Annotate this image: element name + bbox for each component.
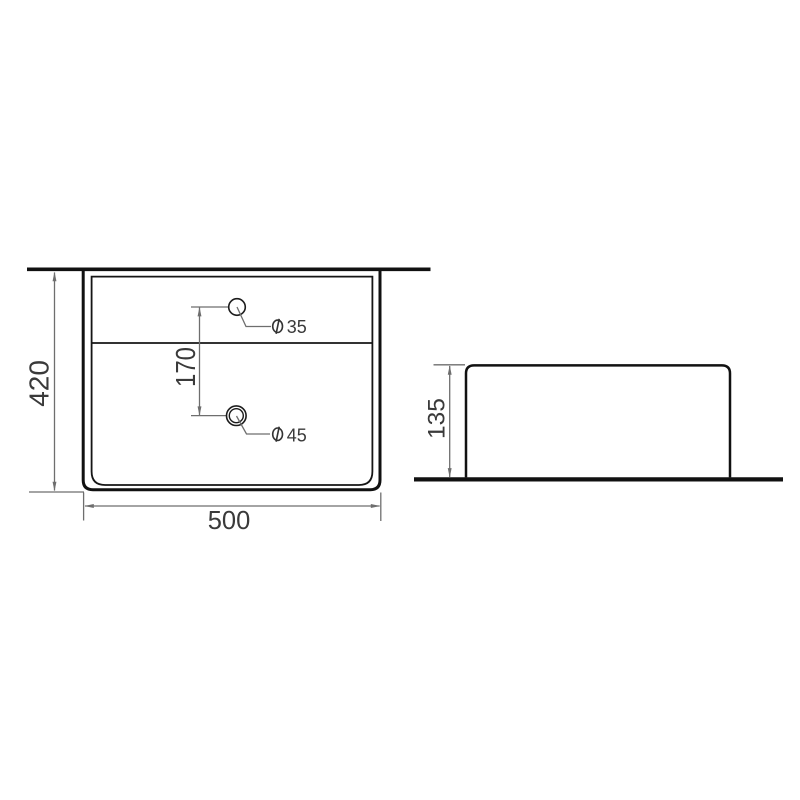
svg-text:420: 420	[24, 360, 55, 407]
svg-text:500: 500	[208, 507, 251, 535]
svg-text:135: 135	[423, 398, 450, 439]
svg-text:170: 170	[170, 347, 201, 387]
svg-text:35: 35	[287, 317, 307, 337]
svg-text:45: 45	[287, 425, 307, 445]
